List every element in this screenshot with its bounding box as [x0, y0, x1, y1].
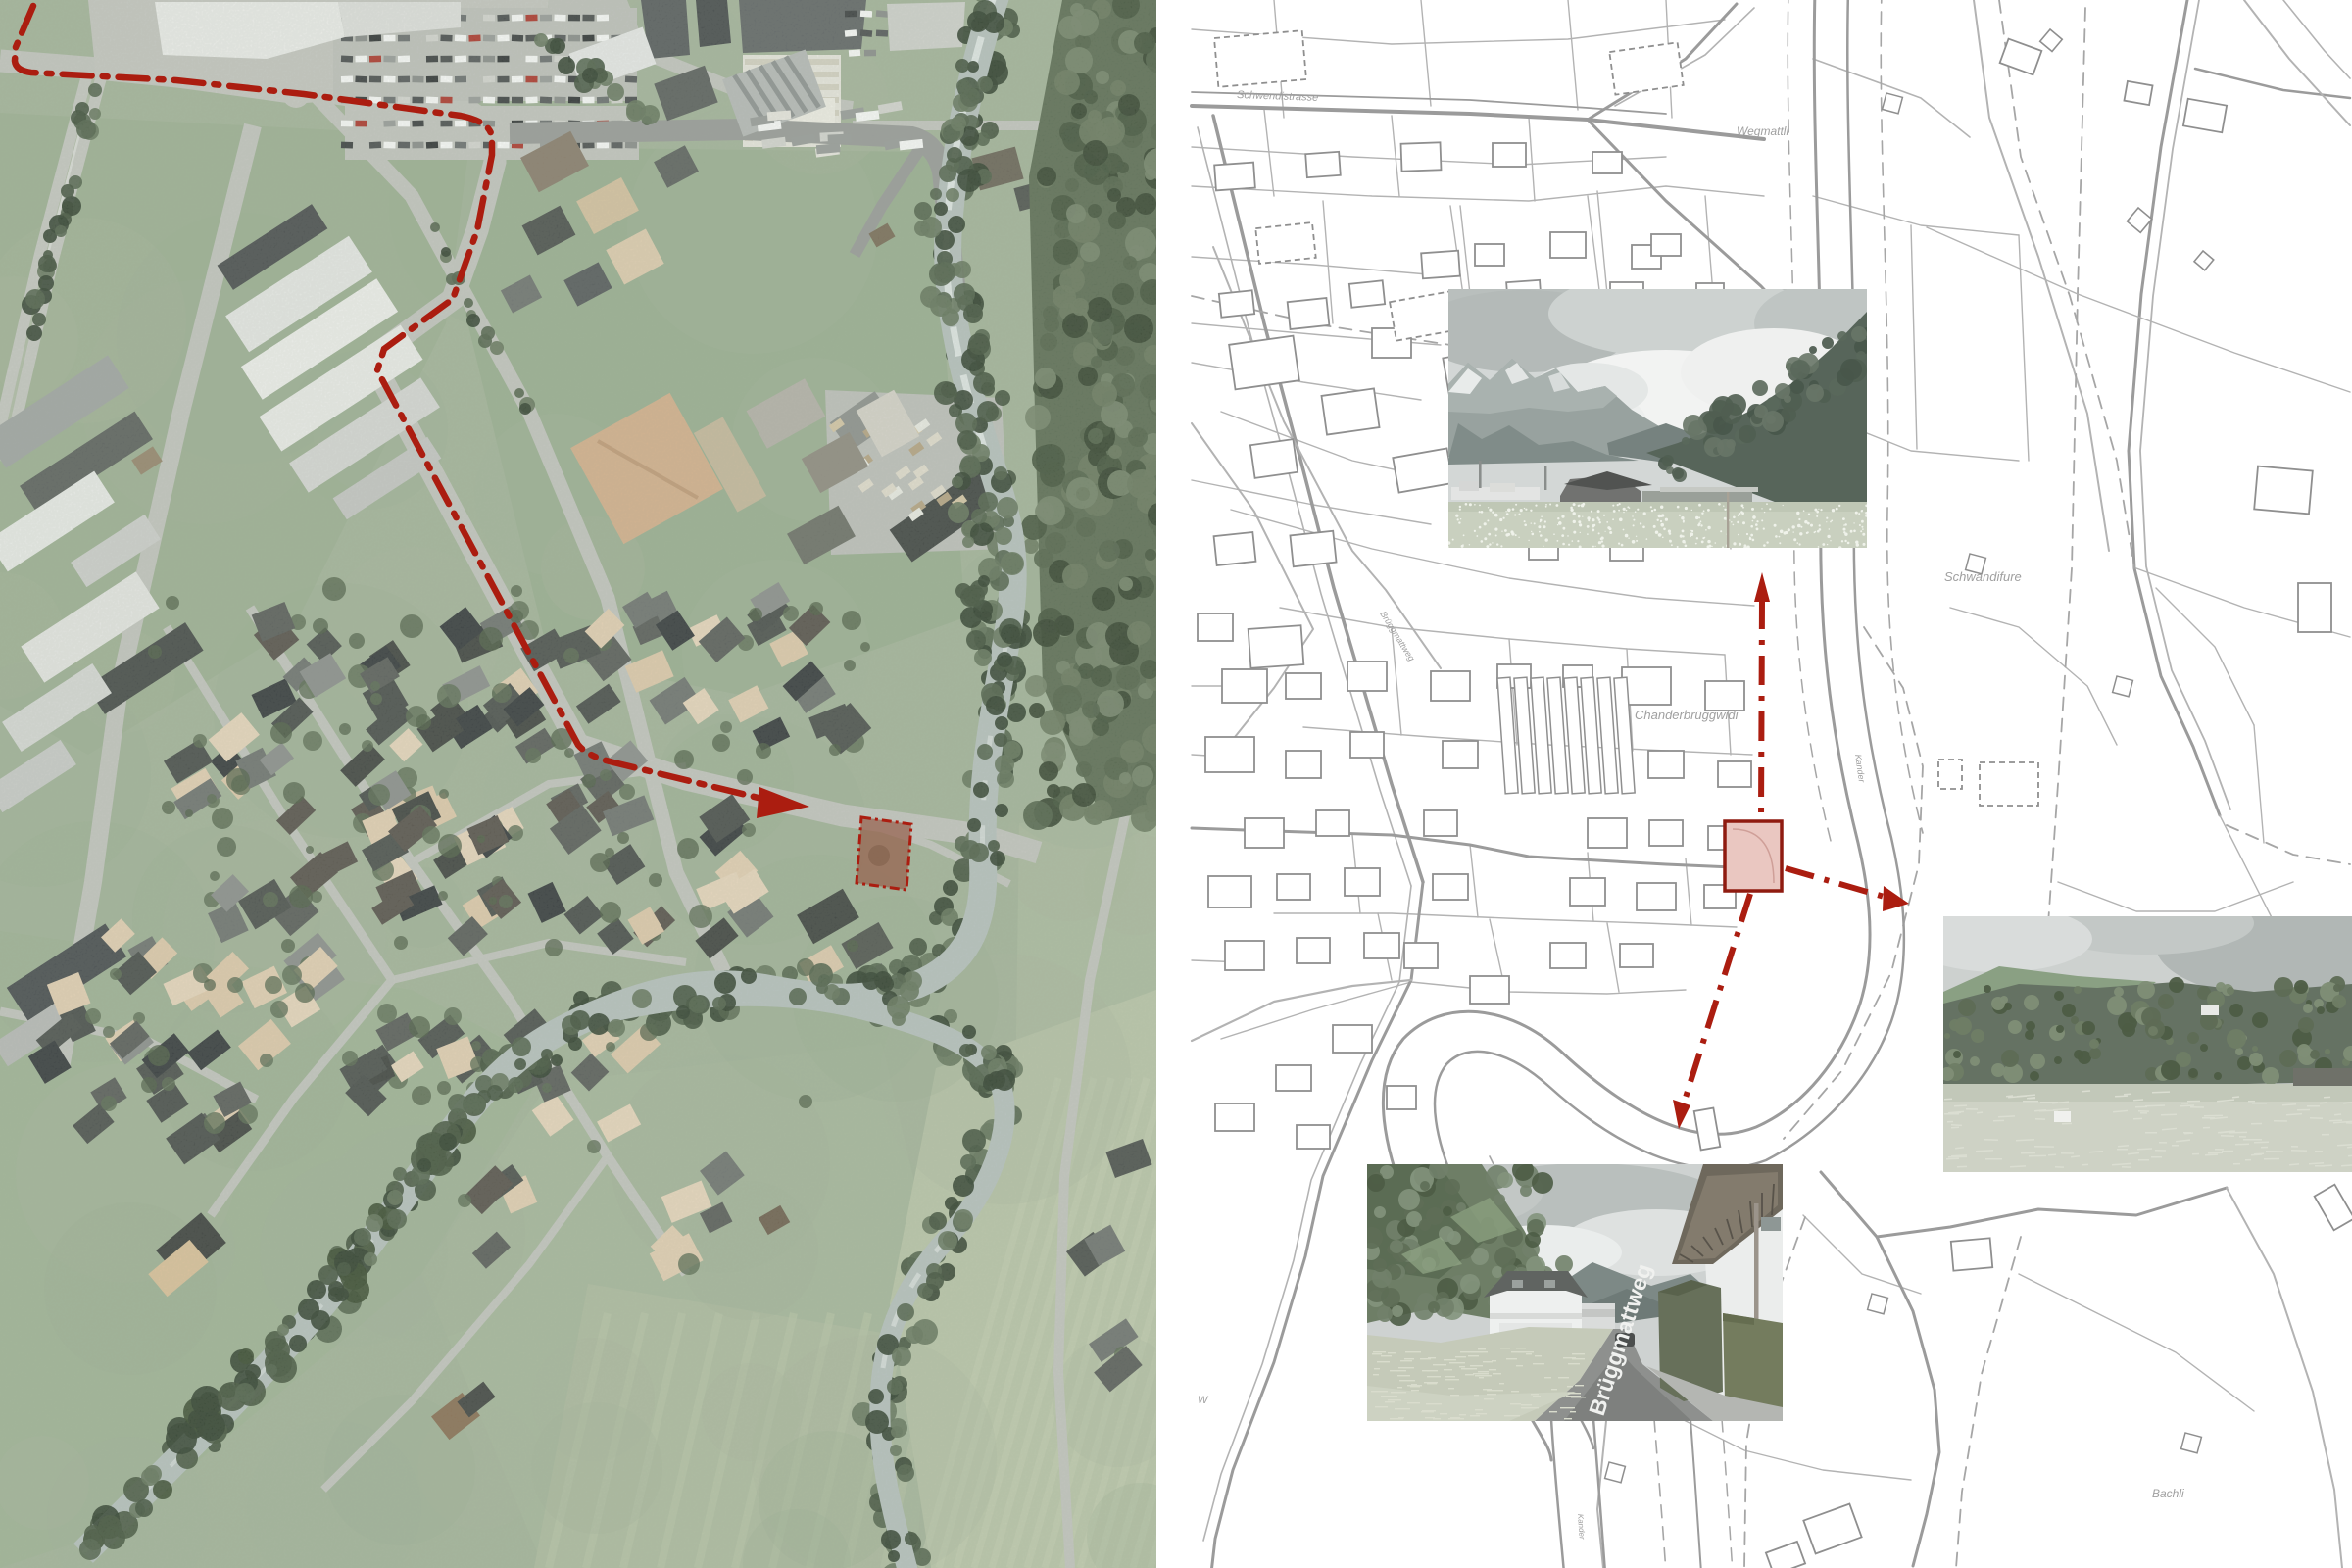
svg-text:Schwandifure: Schwandifure [1944, 569, 2022, 584]
svg-text:W: W [1198, 1395, 1209, 1406]
svg-text:Kander: Kander [1576, 1514, 1587, 1541]
svg-text:Wegmattli: Wegmattli [1737, 124, 1788, 138]
svg-text:Bachli: Bachli [2152, 1487, 2184, 1500]
svg-text:Chanderbrüggwidi: Chanderbrüggwidi [1635, 708, 1739, 722]
